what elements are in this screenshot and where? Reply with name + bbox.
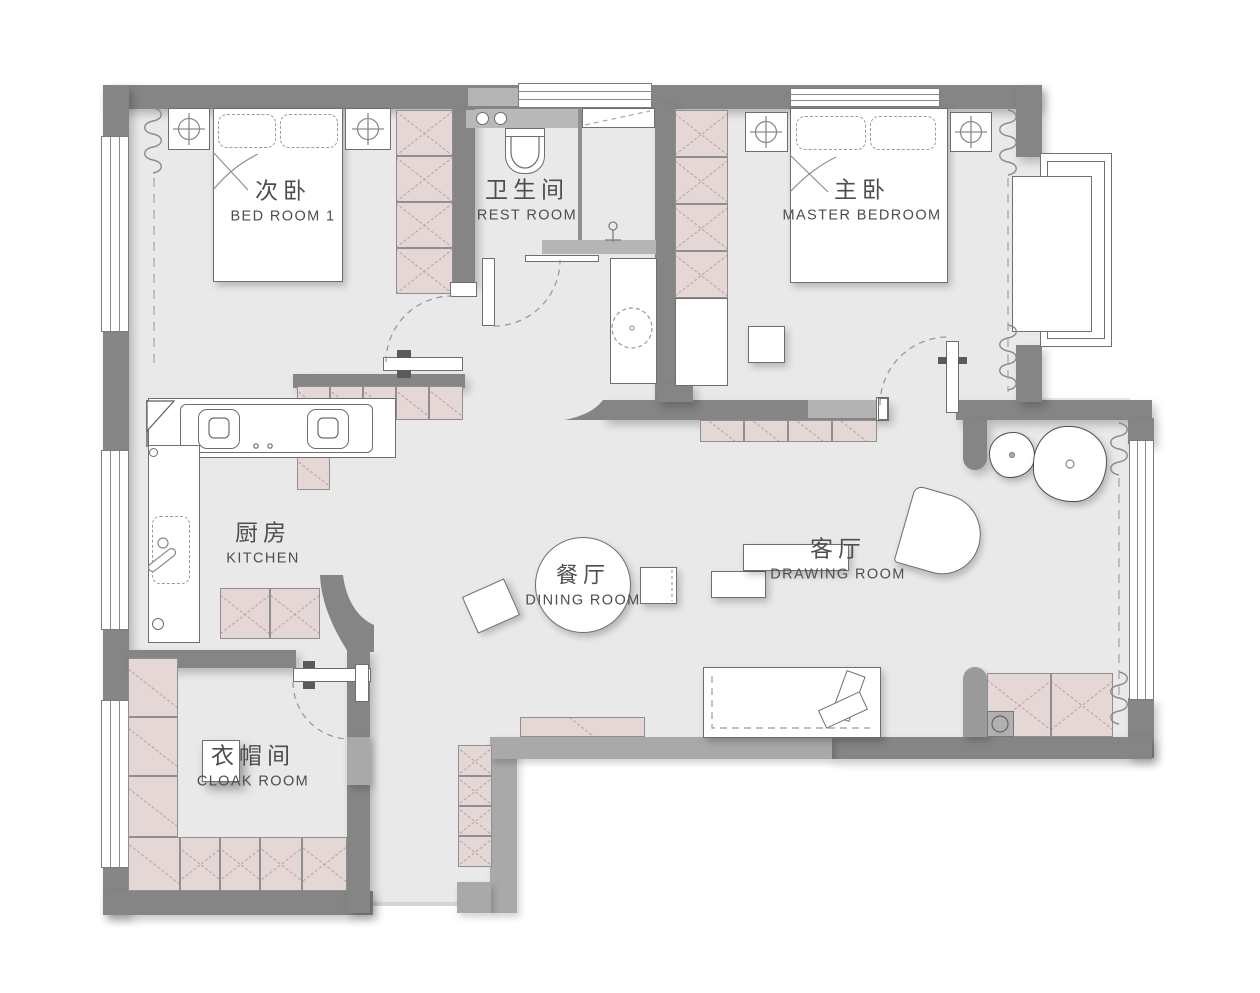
room-label-cloak-room: 衣帽间 CLOAK ROOM (197, 737, 309, 790)
drawing-cabinet-cell (1051, 673, 1113, 737)
window-kitchen-left (101, 450, 129, 630)
bay-window-glass (1012, 176, 1092, 332)
shoe-cabinet-cell (458, 745, 492, 776)
room-name-en: REST ROOM (477, 208, 577, 224)
room-name-en: DINING ROOM (525, 593, 640, 609)
nightstand (745, 112, 788, 152)
wall-entry-horizontal (490, 737, 832, 759)
cloak-wardrobe-cell (180, 837, 220, 891)
door-hinge (958, 357, 967, 364)
room-label-kitchen: 厨房 KITCHEN (226, 514, 299, 567)
dining-bench (711, 571, 766, 598)
stove-burner (307, 409, 349, 449)
door-hinge (397, 370, 411, 378)
door-leaf-master (946, 341, 959, 413)
wall-stub-rounded-top (963, 420, 987, 470)
wall-master-right-upper (1016, 85, 1042, 157)
wardrobe-cell (396, 202, 453, 248)
nightstand (168, 108, 210, 150)
tv-console-cell (700, 420, 744, 442)
room-label-dining-room: 餐厅 DINING ROOM (525, 558, 640, 609)
shower-counter (542, 240, 656, 254)
tv-console-cell (832, 420, 877, 442)
room-name-zh: 餐厅 (525, 558, 640, 590)
wall-master-right-lower (1016, 345, 1042, 402)
drawing-corner-unit (987, 711, 1014, 737)
room-label-drawing-room: 客厅 DRAWING ROOM (770, 530, 905, 583)
nightstand (950, 112, 992, 152)
wall-stub-rounded-bottom (963, 667, 987, 737)
toilet-tank (505, 128, 545, 137)
cloak-wardrobe-cell (128, 658, 178, 717)
vanity-sink-bowl (476, 112, 489, 125)
wardrobe-cell (675, 157, 728, 204)
wardrobe-cell (675, 110, 728, 157)
door-jamb (450, 282, 477, 297)
kitchen-cabinet-cell (297, 455, 330, 490)
door-hinge (303, 661, 315, 668)
wardrobe-cell (675, 251, 728, 298)
shoe-bench (520, 717, 645, 737)
room-name-en: BED ROOM 1 (230, 209, 335, 225)
room-label-master-bedroom: 主卧 MASTER BEDROOM (783, 171, 942, 224)
cloak-wardrobe-cell (260, 837, 302, 891)
door-jamb (878, 398, 888, 420)
shoe-cabinet-cell (458, 806, 492, 836)
vanity-sink-bowl (494, 112, 507, 125)
pillow (280, 114, 338, 148)
plant (1033, 426, 1107, 502)
shoe-cabinet-cell (458, 836, 492, 867)
cloak-wardrobe-cell (128, 717, 178, 776)
window-cloak-left (101, 700, 129, 868)
counter-knob (152, 618, 164, 630)
wall-drawing-top (956, 400, 1152, 420)
window-master-top (790, 88, 940, 107)
kitchen-cabinet-cell (429, 386, 463, 420)
door-jamb (355, 664, 369, 702)
floor-plan: 次卧 BED ROOM 1 卫生间 REST ROOM 主卧 MASTER BE… (0, 0, 1260, 993)
stove-burner (198, 409, 240, 449)
shoe-cabinet-cell (458, 776, 492, 806)
room-name-en: CLOAK ROOM (197, 774, 309, 790)
washing-machine (610, 258, 657, 384)
dining-chair (640, 567, 677, 604)
tv-console-cell (744, 420, 788, 442)
plant (989, 432, 1035, 478)
wall-entry-step (457, 882, 491, 913)
room-label-restroom: 卫生间 REST ROOM (477, 171, 577, 224)
kitchen-cabinet-cell (270, 588, 320, 639)
room-name-en: KITCHEN (226, 551, 299, 567)
cloak-wardrobe-cell (128, 837, 180, 891)
window-bathroom-top (518, 83, 652, 108)
door-hinge (303, 682, 315, 689)
tv-ledge (808, 400, 878, 418)
counter-knob (149, 448, 158, 457)
room-name-en: MASTER BEDROOM (783, 208, 942, 224)
kitchen-cabinet-cell (396, 386, 429, 420)
room-name-zh: 卫生间 (477, 171, 577, 205)
door-leaf-bedroom1 (383, 357, 463, 371)
wardrobe-cell (396, 110, 453, 156)
window-drawing-right (1129, 440, 1154, 700)
cloak-wardrobe-cell (128, 776, 178, 837)
room-name-zh: 主卧 (783, 171, 942, 205)
cloak-wardrobe-cell (220, 837, 260, 891)
master-side-table (748, 326, 785, 363)
shower-shelf (525, 255, 599, 262)
door-leaf-bathroom (482, 258, 495, 326)
kitchen-cabinet-cell (220, 588, 270, 639)
wardrobe-cell (675, 204, 728, 251)
room-name-zh: 衣帽间 (197, 737, 309, 771)
room-name-en: DRAWING ROOM (770, 567, 905, 583)
wall-cloak-pillar (347, 737, 370, 785)
cloak-wardrobe-cell (302, 837, 347, 891)
master-dresser (675, 298, 728, 386)
wardrobe-cell (396, 156, 453, 202)
wall-bottom-right (830, 737, 1152, 759)
room-label-bedroom1: 次卧 BED ROOM 1 (230, 172, 335, 225)
wall-plaque-top (468, 88, 518, 106)
room-name-zh: 客厅 (770, 530, 905, 564)
wall-entry-vertical (490, 737, 517, 913)
door-hinge (938, 357, 947, 364)
window-bedroom1-left (101, 136, 129, 332)
wall-bedroom1-bath (452, 108, 475, 284)
wall-bath-divider (578, 108, 582, 244)
tv-console-cell (788, 420, 832, 442)
room-name-zh: 厨房 (226, 514, 299, 548)
nightstand (345, 108, 391, 150)
pillow (870, 116, 936, 150)
room-name-zh: 次卧 (230, 172, 335, 206)
door-hinge (397, 350, 411, 358)
pillow (796, 116, 866, 150)
wardrobe-cell (396, 248, 453, 294)
bath-shelf-cabinet (582, 108, 655, 128)
wall-laundry-right (655, 105, 675, 402)
kitchen-sink (152, 516, 190, 584)
pillow (218, 114, 276, 148)
wall-bottom-left (103, 891, 373, 915)
